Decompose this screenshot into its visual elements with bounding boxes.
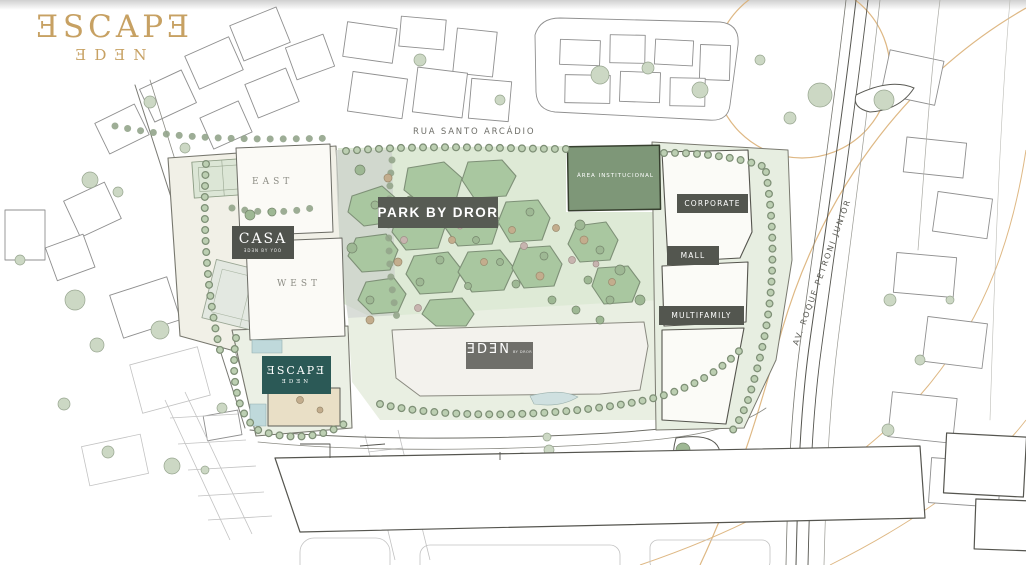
logo-title: ƎSCAPƎ: [30, 10, 200, 44]
multifamily-label: MULTIFAMILY: [671, 311, 731, 320]
masterplan-slide: ƎSCAPƎ ƎDƎN RUA SANTO ARCÁDIO AV. ROQUE …: [0, 0, 1026, 565]
institutional-area-label: ÁREA INSTITUCIONAL: [577, 173, 654, 179]
multifamily-badge: MULTIFAMILY: [659, 306, 744, 325]
eden-suffix: BY DROR: [513, 350, 532, 354]
logo-subtitle: ƎDƎN: [30, 46, 200, 64]
mall-label: MALL: [681, 251, 706, 260]
casa-subtitle: ƎDƎN BY YOO: [244, 248, 282, 253]
eden-title: ƎDƎN: [467, 342, 511, 357]
park-by-dror-badge: PARK BY DROR: [378, 197, 498, 228]
mall-badge: MALL: [667, 246, 719, 265]
corporate-badge: CORPORATE: [677, 194, 748, 213]
brand-logo: ƎSCAPƎ ƎDƎN: [30, 10, 200, 64]
eden-badge: ƎDƎN BY DROR: [466, 342, 533, 369]
casa-badge: CASA ƎDƎN BY YOO: [232, 226, 294, 259]
east-tower-label: EAST: [252, 177, 293, 187]
corporate-label: CORPORATE: [684, 199, 740, 208]
escape-eden-badge: ƎSCAPƎ ƎDƎN: [262, 356, 331, 394]
park-by-dror-label: PARK BY DROR: [378, 205, 499, 220]
west-tower-label: WEST: [277, 279, 321, 289]
casa-title: CASA: [239, 232, 288, 246]
escape-subtitle: ƎDƎN: [282, 379, 311, 385]
street-label-rua-santo-arcadio: RUA SANTO ARCÁDIO: [413, 127, 535, 137]
escape-title: ƎSCAPƎ: [267, 365, 326, 377]
bottom-sketch-building: [275, 433, 1026, 551]
site-plan-map: [0, 0, 1026, 565]
